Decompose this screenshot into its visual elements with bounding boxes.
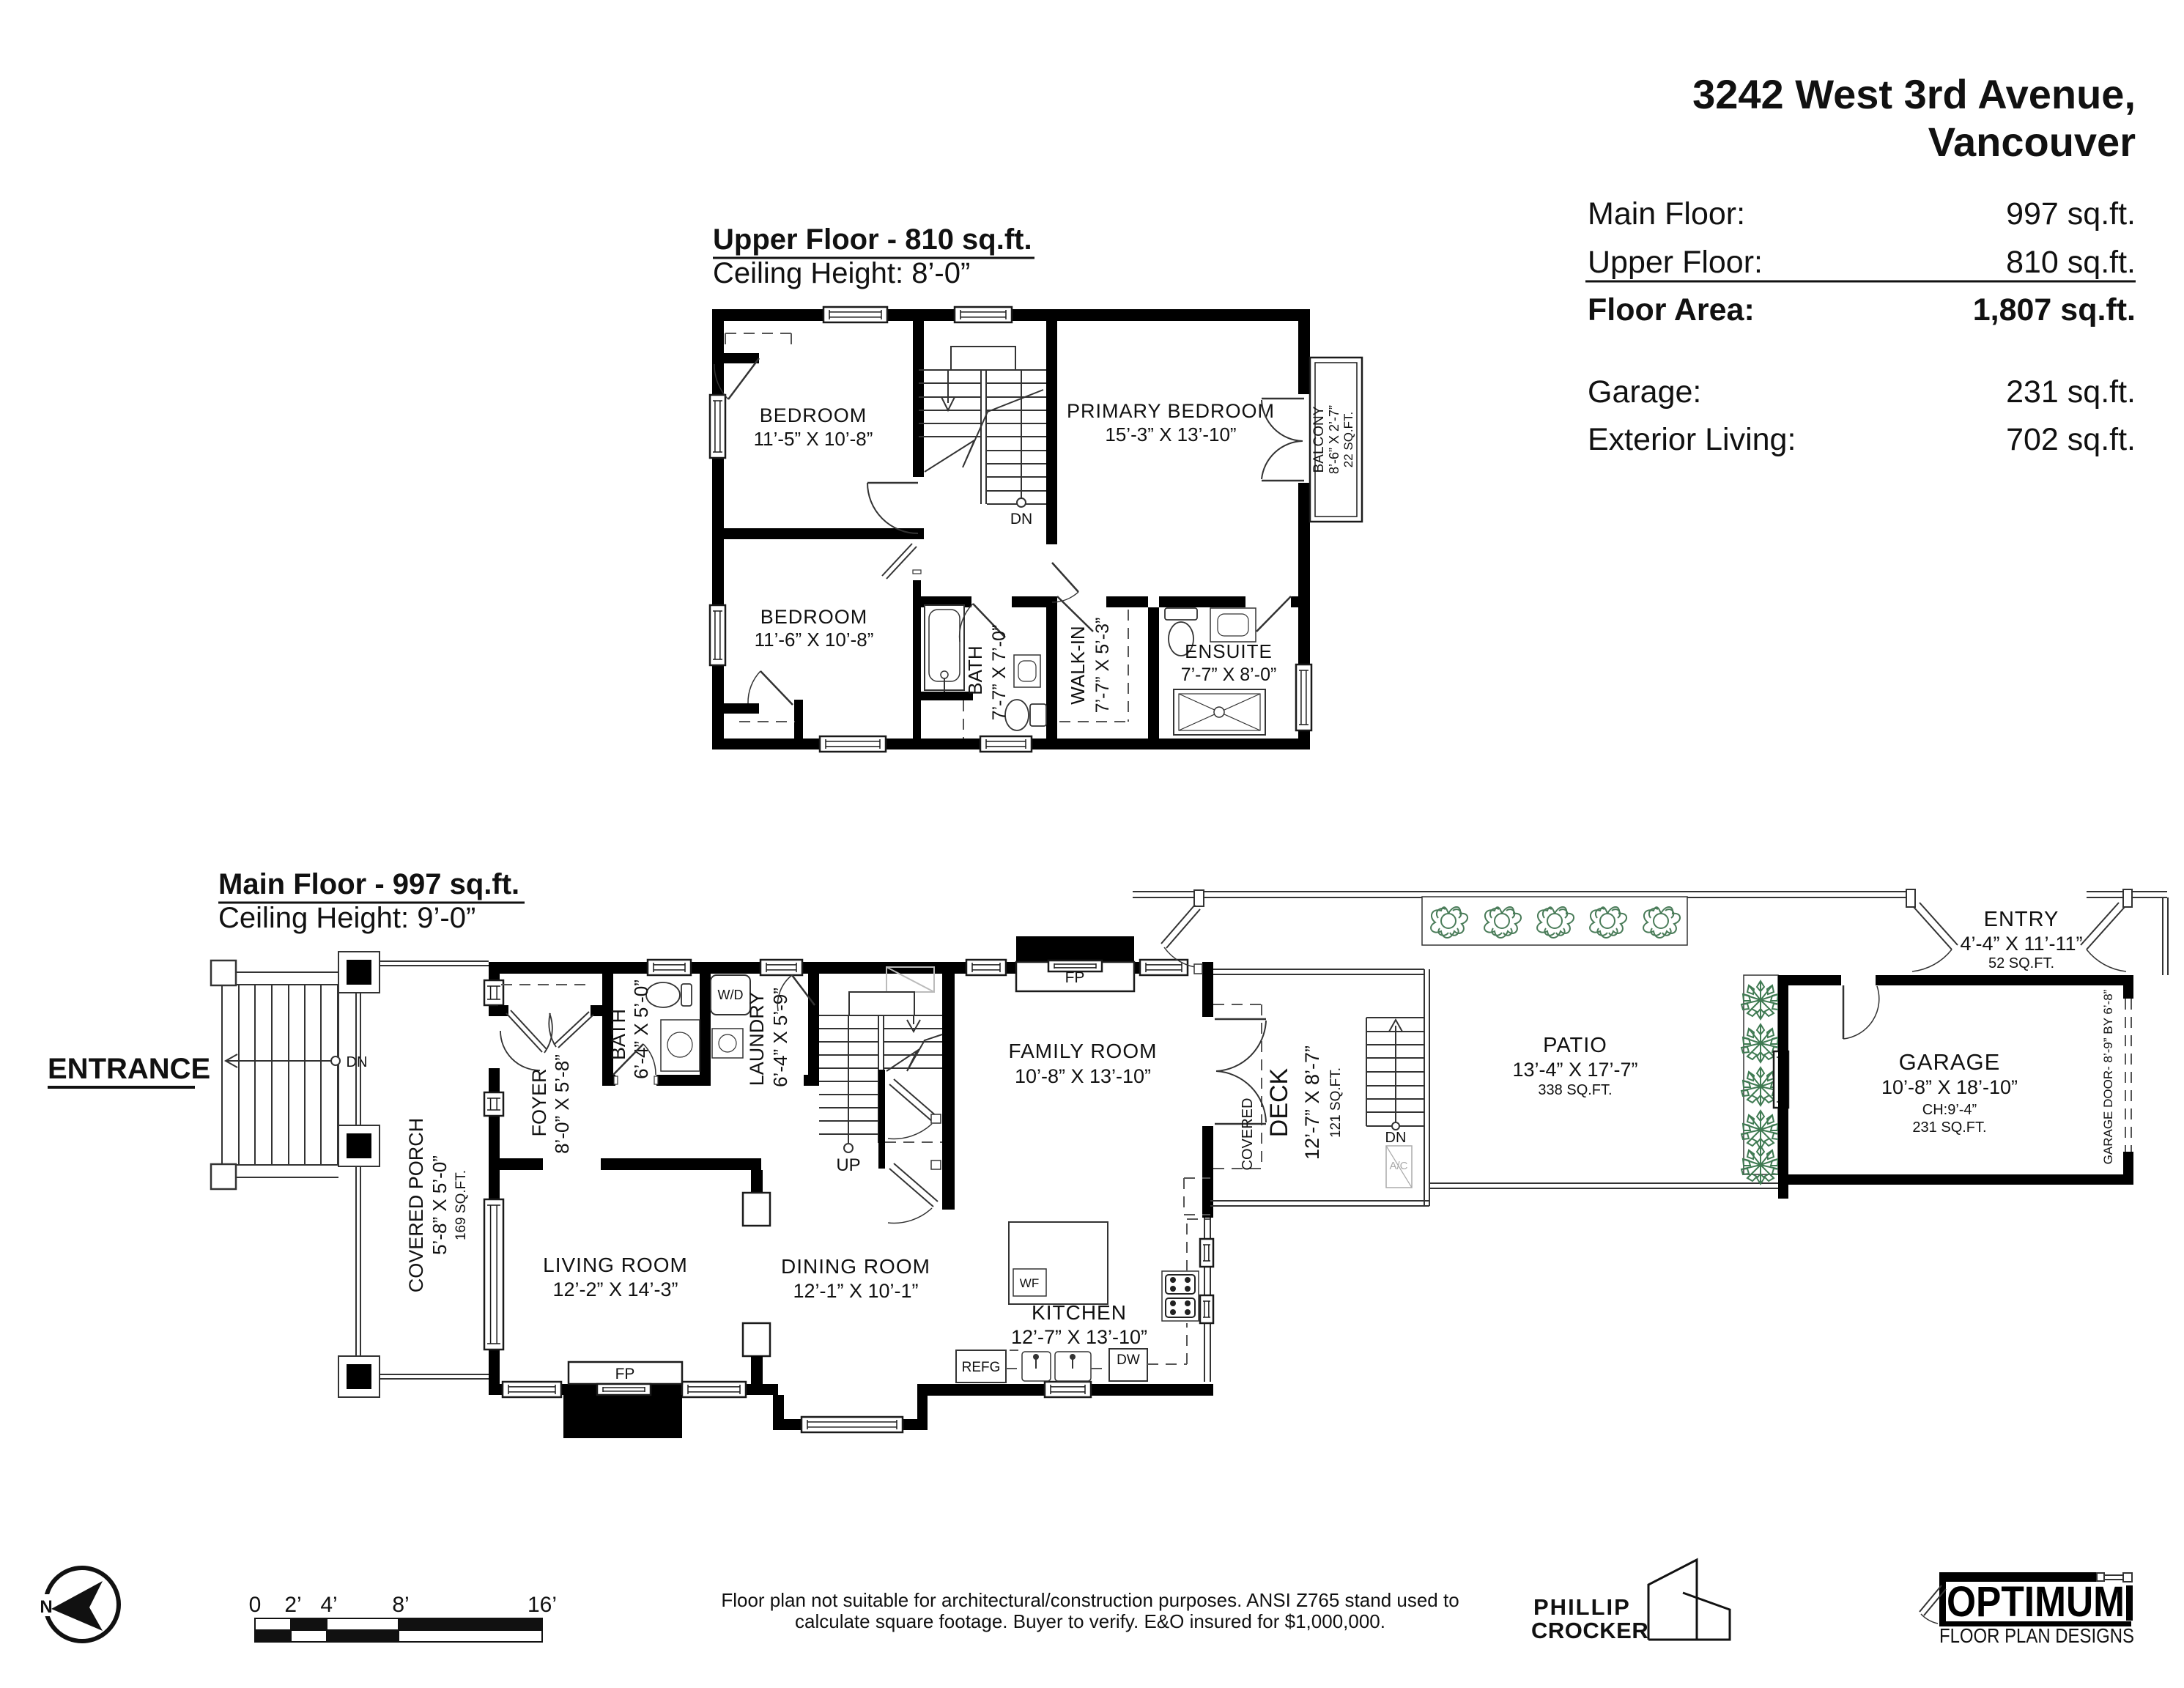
- svg-text:LIVING ROOM: LIVING ROOM: [543, 1254, 688, 1276]
- svg-text:DECK: DECK: [1265, 1067, 1293, 1137]
- svg-text:Exterior Living:: Exterior Living:: [1588, 422, 1796, 457]
- svg-text:DW: DW: [1117, 1352, 1140, 1368]
- svg-text:12’-2” X 14’-3”: 12’-2” X 14’-3”: [552, 1278, 678, 1300]
- svg-text:COVERED PORCH: COVERED PORCH: [405, 1118, 427, 1293]
- svg-text:Main Floor:: Main Floor:: [1588, 196, 1745, 232]
- svg-text:12’-1” X 10’-1”: 12’-1” X 10’-1”: [793, 1280, 918, 1302]
- svg-text:338 SQ.FT.: 338 SQ.FT.: [1538, 1082, 1612, 1098]
- svg-text:169 SQ.FT.: 169 SQ.FT.: [454, 1170, 469, 1240]
- svg-text:DN: DN: [1385, 1130, 1407, 1146]
- svg-text:4’-4” X 11’-11”: 4’-4” X 11’-11”: [1960, 933, 2082, 955]
- svg-text:10’-8” X 13’-10”: 10’-8” X 13’-10”: [1015, 1065, 1151, 1087]
- svg-text:calculate square footage. Buye: calculate square footage. Buyer to verif…: [795, 1610, 1385, 1632]
- svg-text:BEDROOM: BEDROOM: [760, 404, 867, 426]
- svg-text:LAUNDRY: LAUNDRY: [746, 992, 768, 1087]
- svg-text:702 sq.ft.: 702 sq.ft.: [2006, 422, 2136, 457]
- svg-text:810 sq.ft.: 810 sq.ft.: [2006, 245, 2136, 280]
- svg-text:FOYER: FOYER: [528, 1068, 550, 1136]
- svg-text:W/D: W/D: [718, 988, 744, 1002]
- svg-text:Ceiling Height: 9’-0”: Ceiling Height: 9’-0”: [218, 902, 475, 934]
- svg-text:Upper Floor - 810 sq.ft.: Upper Floor - 810 sq.ft.: [713, 223, 1032, 256]
- svg-text:A/C: A/C: [1389, 1160, 1407, 1172]
- svg-text:6’-4” X 5’-0”: 6’-4” X 5’-0”: [630, 980, 652, 1079]
- svg-text:PATIO: PATIO: [1543, 1034, 1607, 1057]
- svg-text:CH:9’-4”: CH:9’-4”: [1922, 1102, 1977, 1118]
- svg-text:8’-6” X 2’-7”: 8’-6” X 2’-7”: [1327, 405, 1341, 474]
- svg-text:BATH: BATH: [964, 645, 986, 695]
- svg-text:7’-7” X 5’-3”: 7’-7” X 5’-3”: [1092, 618, 1113, 714]
- svg-text:DN: DN: [1010, 511, 1032, 527]
- svg-text:7’-7” X 8’-0”: 7’-7” X 8’-0”: [1181, 665, 1277, 685]
- svg-text:Vancouver: Vancouver: [1928, 119, 2136, 165]
- svg-text:4’: 4’: [320, 1593, 337, 1617]
- svg-text:BEDROOM: BEDROOM: [760, 606, 868, 628]
- svg-text:7’-7” X 7’-0”: 7’-7” X 7’-0”: [989, 625, 1010, 721]
- svg-text:11’-5” X 10’-8”: 11’-5” X 10’-8”: [754, 428, 873, 450]
- svg-text:3242 West 3rd Avenue,: 3242 West 3rd Avenue,: [1692, 71, 2136, 117]
- svg-text:52 SQ.FT.: 52 SQ.FT.: [1988, 955, 2054, 971]
- svg-text:Ceiling Height: 8’-0”: Ceiling Height: 8’-0”: [713, 257, 970, 289]
- svg-text:Garage:: Garage:: [1588, 374, 1701, 410]
- svg-text:GARAGE DOOR- 8’-9” BY 6’-8”: GARAGE DOOR- 8’-9” BY 6’-8”: [2101, 989, 2115, 1164]
- svg-text:1,807 sq.ft.: 1,807 sq.ft.: [1973, 292, 2136, 327]
- svg-text:Floor Area:: Floor Area:: [1588, 292, 1755, 327]
- svg-text:BALCONY: BALCONY: [1311, 406, 1327, 473]
- svg-text:COVERED: COVERED: [1240, 1098, 1256, 1171]
- svg-text:PRIMARY BEDROOM: PRIMARY BEDROOM: [1067, 400, 1275, 422]
- svg-text:FP: FP: [615, 1366, 635, 1382]
- svg-text:13’-4” X 17’-7”: 13’-4” X 17’-7”: [1512, 1059, 1637, 1081]
- svg-text:8’-0” X 5’-8”: 8’-0” X 5’-8”: [551, 1054, 573, 1154]
- svg-text:0: 0: [249, 1593, 262, 1617]
- svg-text:Main Floor - 997 sq.ft.: Main Floor - 997 sq.ft.: [218, 868, 519, 900]
- svg-text:6’-4” X 5’-9”: 6’-4” X 5’-9”: [769, 988, 791, 1087]
- svg-text:WF: WF: [1020, 1276, 1039, 1290]
- svg-text:12’-7” X 8’-7”: 12’-7” X 8’-7”: [1301, 1045, 1323, 1160]
- svg-text:997 sq.ft.: 997 sq.ft.: [2006, 196, 2136, 232]
- svg-text:PHILLIP: PHILLIP: [1533, 1594, 1631, 1620]
- svg-text:REFG: REFG: [962, 1360, 1001, 1375]
- svg-text:10’-8” X 18’-10”: 10’-8” X 18’-10”: [1881, 1076, 2018, 1098]
- svg-text:OPTIMUM: OPTIMUM: [1947, 1578, 2125, 1626]
- svg-text:FAMILY ROOM: FAMILY ROOM: [1009, 1040, 1158, 1062]
- svg-text:N: N: [40, 1597, 52, 1617]
- svg-text:ENSUITE: ENSUITE: [1185, 640, 1273, 662]
- svg-text:UP: UP: [836, 1155, 860, 1175]
- svg-text:16’: 16’: [528, 1593, 557, 1617]
- svg-text:Upper Floor:: Upper Floor:: [1588, 245, 1763, 280]
- svg-text:231 sq.ft.: 231 sq.ft.: [2006, 374, 2136, 410]
- svg-text:8’: 8’: [392, 1593, 409, 1617]
- svg-text:GARAGE: GARAGE: [1899, 1049, 2001, 1075]
- svg-text:12’-7” X 13’-10”: 12’-7” X 13’-10”: [1011, 1326, 1147, 1348]
- svg-text:CROCKER: CROCKER: [1531, 1618, 1648, 1643]
- svg-text:ENTRY: ENTRY: [1984, 908, 2059, 931]
- svg-text:121 SQ.FT.: 121 SQ.FT.: [1328, 1067, 1344, 1138]
- svg-text:15’-3” X 13’-10”: 15’-3” X 13’-10”: [1105, 423, 1236, 445]
- svg-text:ENTRANCE: ENTRANCE: [48, 1053, 210, 1085]
- svg-text:WALK-IN: WALK-IN: [1067, 626, 1089, 704]
- svg-text:5’-8” X 5’-0”: 5’-8” X 5’-0”: [429, 1155, 451, 1255]
- svg-text:11’-6” X 10’-8”: 11’-6” X 10’-8”: [755, 629, 874, 651]
- svg-text:231 SQ.FT.: 231 SQ.FT.: [1912, 1119, 1986, 1136]
- svg-text:FLOOR PLAN DESIGNS: FLOOR PLAN DESIGNS: [1939, 1624, 2134, 1647]
- svg-text:BATH: BATH: [607, 1009, 629, 1060]
- svg-text:2’: 2’: [284, 1593, 301, 1617]
- svg-text:Floor plan not suitable for ar: Floor plan not suitable for architectura…: [721, 1589, 1459, 1611]
- svg-text:DINING ROOM: DINING ROOM: [781, 1255, 930, 1278]
- svg-text:22 SQ.FT.: 22 SQ.FT.: [1341, 412, 1355, 468]
